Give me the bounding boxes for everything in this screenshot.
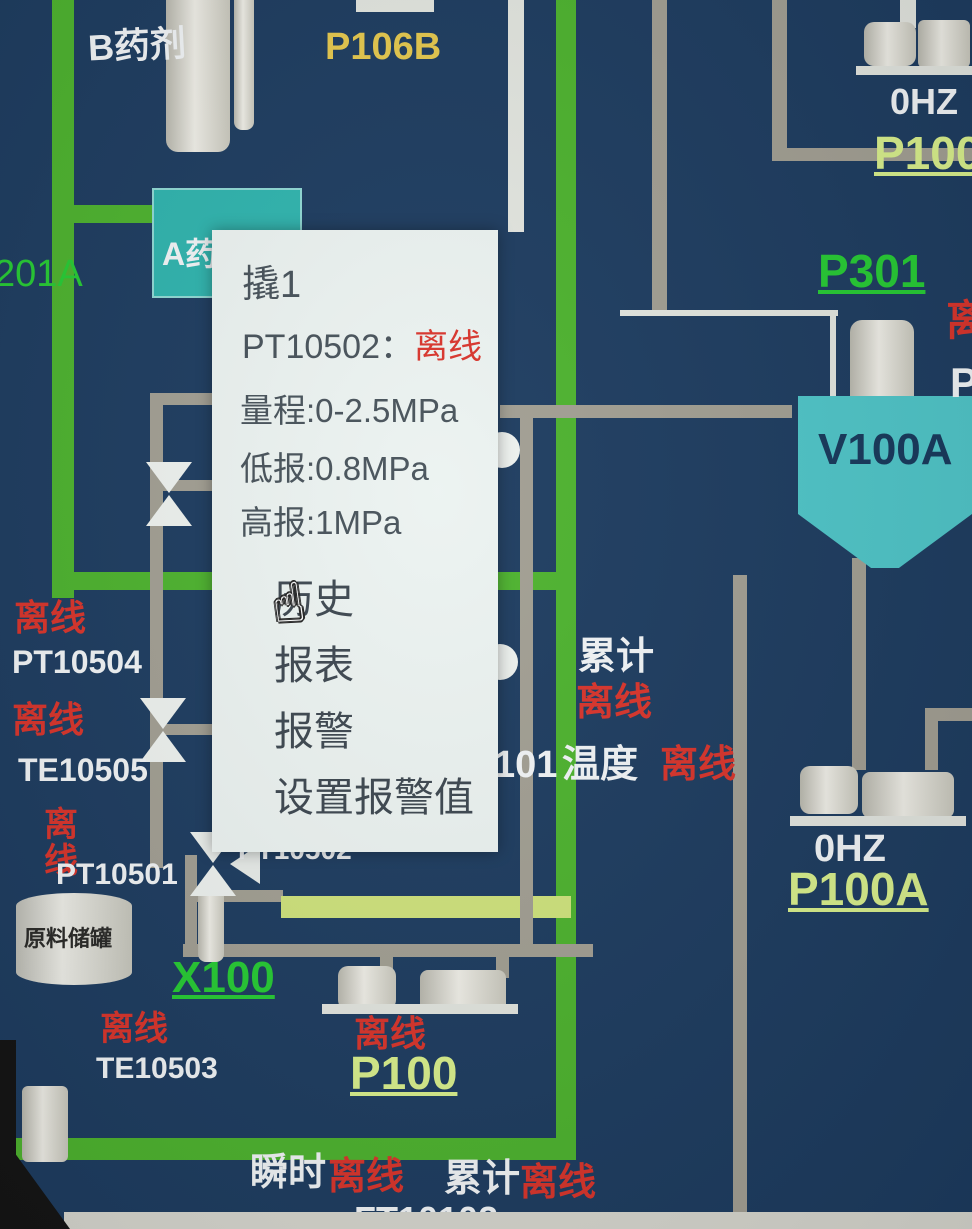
pump-top-right-motor[interactable]: [864, 22, 916, 66]
device-context-popup: 撬1 PT10502：离线 量程:0-2.5MPa 低报:0.8MPa 高报:1…: [212, 230, 498, 852]
tag-x100[interactable]: X100: [172, 956, 275, 1000]
tag-p100a[interactable]: P100A: [788, 866, 929, 912]
monitor-left-bezel-wedge: [0, 1040, 16, 1229]
popup-title: 撬1: [242, 266, 301, 304]
tag-te10505[interactable]: TE10505: [18, 754, 148, 786]
pipe-gray-popup-top-stub: [150, 393, 214, 405]
pipe-gray-topright-vertical: [772, 0, 787, 160]
hmi-screen: A药剂 V100A 原料储罐 B药剂 P106B 201A 0HZ P100 P…: [0, 0, 972, 1229]
pipe-gray-hopper-drop-vertical: [852, 558, 866, 770]
hopper-v100a-tag[interactable]: V100A: [818, 428, 953, 472]
status-temperature: 离线: [660, 746, 736, 784]
valve-bottom-triangle: [146, 495, 192, 526]
tag-te10503[interactable]: TE10503: [96, 1054, 218, 1084]
pump-top-right-baseplate: [856, 66, 972, 75]
hopper-v100a-funnel: [798, 514, 972, 568]
pump-p100a-body[interactable]: [862, 772, 954, 818]
tag-p301[interactable]: P301: [818, 248, 925, 294]
popup-menu-item-set-alarm-value[interactable]: 设置报警值: [274, 778, 474, 818]
tag-ft10102[interactable]: FT10102: [354, 1202, 498, 1229]
right-edge-partial-red-text: 离: [946, 300, 972, 342]
label-temperature-prefix: 101: [494, 746, 557, 784]
popup-low-alarm-line: 低报:0.8MPa: [240, 452, 429, 485]
popup-device-status: 离线: [414, 328, 482, 366]
boundary-white-vertical: [830, 310, 836, 406]
tag-p106b[interactable]: P106B: [325, 28, 441, 66]
raw-material-tank-label: 原料储罐: [24, 928, 112, 950]
tag-201a: 201A: [0, 255, 83, 293]
pipe-gray-right-of-popup-vertical: [520, 405, 533, 947]
valve-top-triangle: [146, 462, 192, 493]
pipe-green-left-vertical: [52, 0, 74, 598]
popup-device-line: PT10502：离线: [242, 330, 482, 364]
label-instantaneous: 瞬时: [250, 1154, 326, 1192]
platform-top-box: [356, 0, 434, 12]
pipe-gray-topmid-vertical: [652, 0, 667, 315]
pipe-green-topleft-branch: [52, 205, 164, 223]
label-totalizer: 累计: [578, 638, 654, 676]
status-pt10504: 离线: [14, 600, 86, 636]
popup-menu-item-alarm[interactable]: 报警: [274, 712, 354, 752]
pump-p100a-motor[interactable]: [800, 766, 858, 814]
pipe-white-topcenter-vertical: [508, 0, 524, 232]
pipe-green-main-vertical: [556, 0, 576, 1158]
popup-high-alarm-line: 高报:1MPa: [240, 506, 401, 539]
popup-range-line: 量程:0-2.5MPa: [240, 394, 458, 427]
pump-p100a-baseplate: [790, 816, 966, 826]
pipe-gray-right-long-vertical: [733, 575, 747, 1229]
pipe-gray-above-right-horizontal: [500, 405, 792, 418]
label-totalized-bottom: 累计: [444, 1160, 520, 1198]
monitor-bottom-strip: [64, 1212, 972, 1229]
popup-menu-item-report[interactable]: 报表: [274, 646, 354, 686]
right-edge-partial-white-text: P: [950, 362, 972, 404]
popup-device-separator: ：: [380, 328, 414, 366]
pump-top-right-body[interactable]: [918, 20, 970, 68]
pump-top-right-speed: 0HZ: [890, 84, 958, 120]
tag-p100[interactable]: P100: [350, 1050, 457, 1096]
status-te10505: 离线: [12, 702, 84, 738]
valve-top-triangle: [140, 698, 186, 729]
hopper-agitator-motor[interactable]: [850, 320, 914, 406]
status-totalizer: 离线: [576, 684, 652, 722]
status-te10503: 离线: [100, 1012, 168, 1046]
tag-p100-top-right[interactable]: P100: [874, 130, 972, 176]
boundary-white-horizontal: [620, 310, 838, 316]
label-b-agent: B药剂: [87, 25, 187, 66]
popup-device-tag: PT10502: [242, 328, 380, 366]
vessel-column-side-pipe: [234, 0, 254, 130]
pipe-gray-rightedge-elbow-vertical: [925, 708, 938, 770]
instrument-filter-bottom-left[interactable]: [22, 1086, 68, 1162]
tag-pt10504[interactable]: PT10504: [12, 646, 142, 678]
status-totalized-bottom: 离线: [520, 1164, 596, 1202]
tag-pt10501[interactable]: PT10501: [56, 860, 178, 890]
valve-icon-1[interactable]: [146, 462, 192, 526]
label-temperature: 温度: [562, 746, 638, 784]
status-instantaneous: 离线: [328, 1158, 404, 1196]
